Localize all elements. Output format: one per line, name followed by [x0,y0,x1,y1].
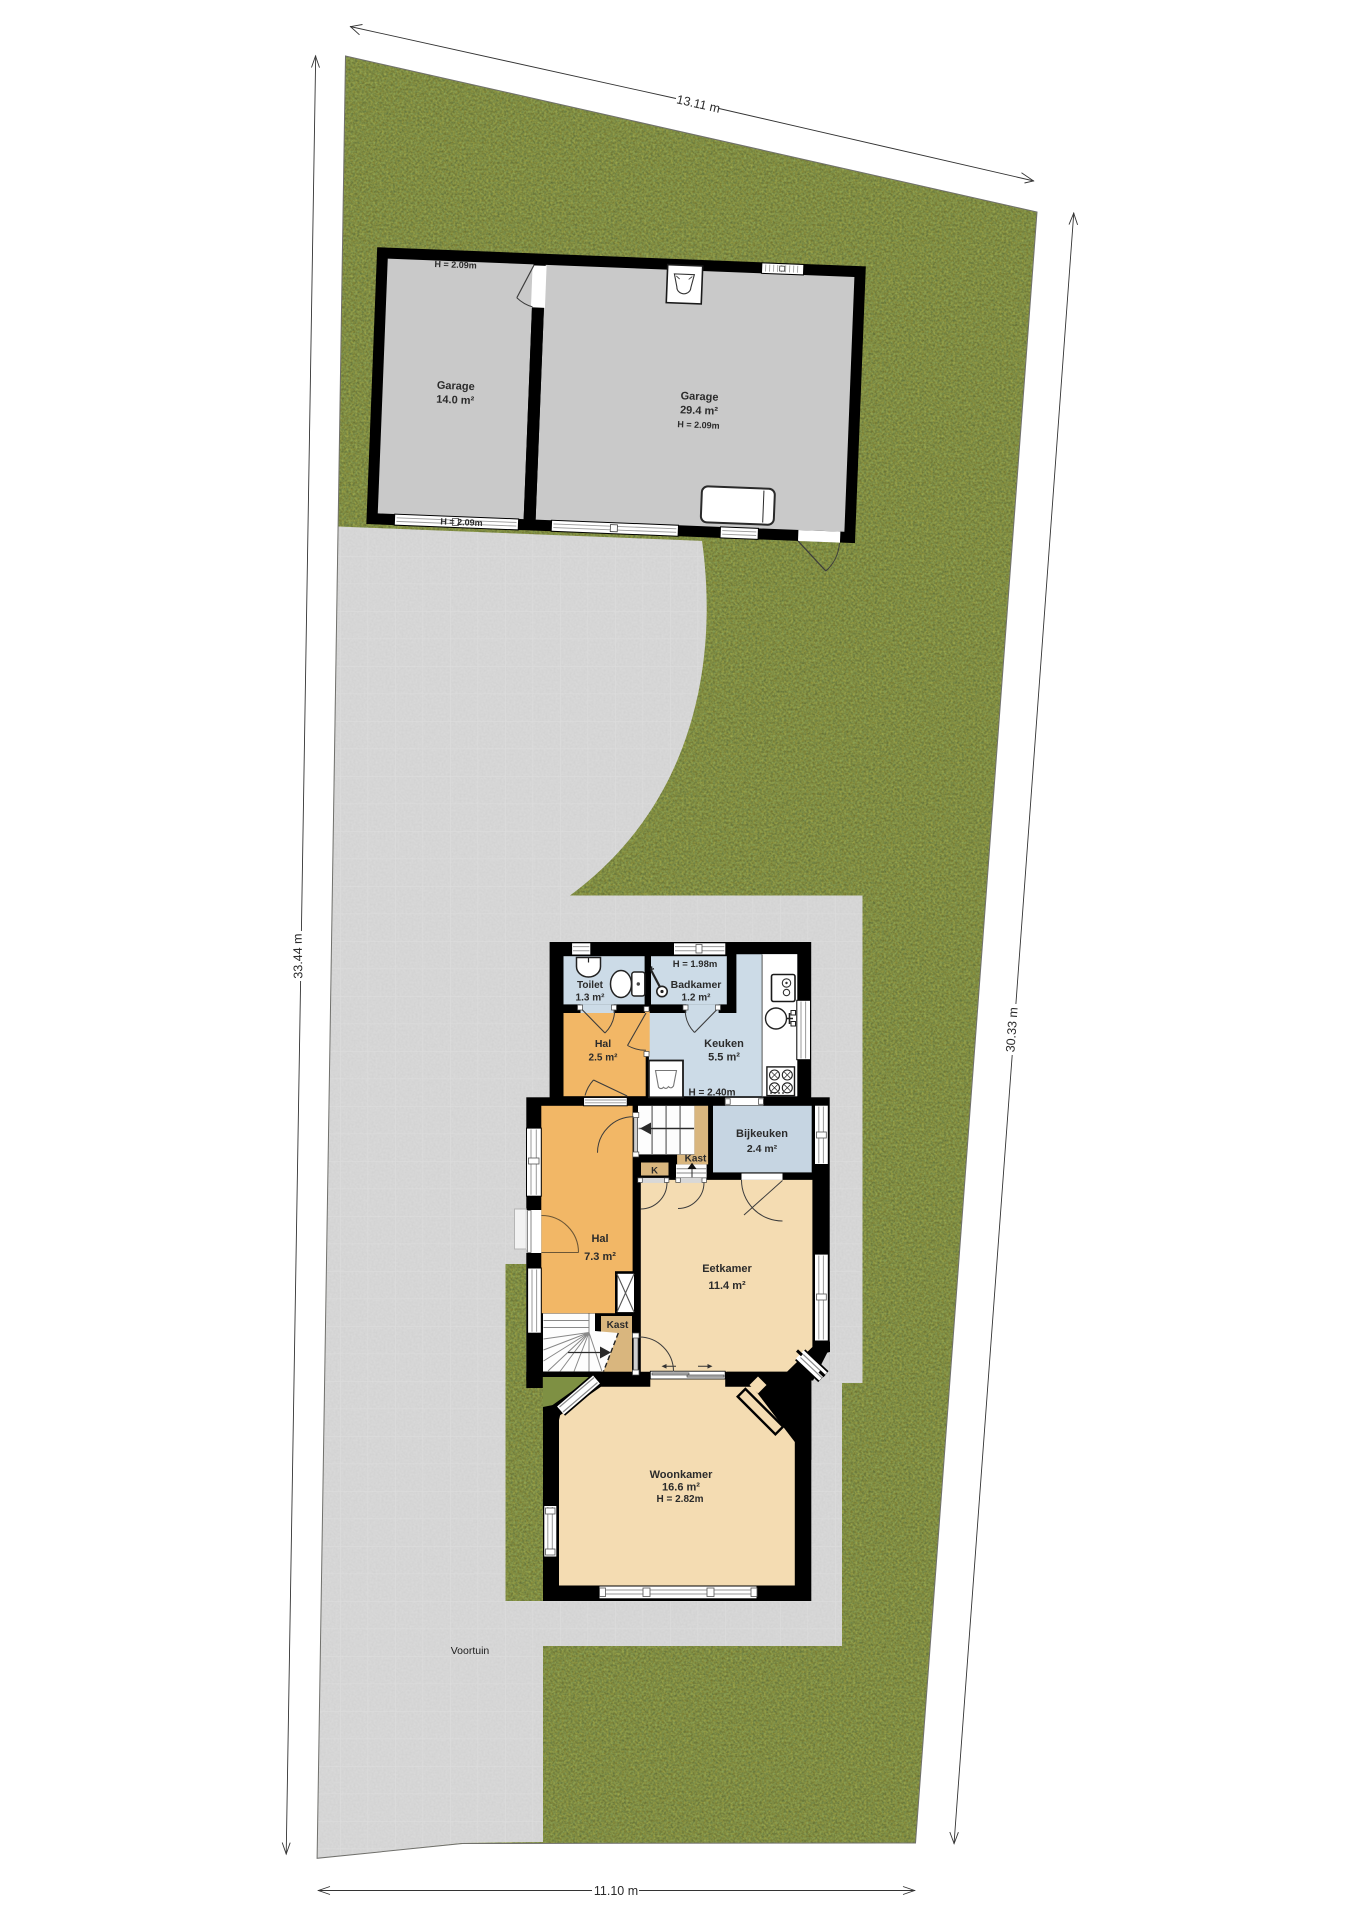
svg-text:1.3 m²: 1.3 m² [576,993,606,1004]
svg-text:Hal: Hal [595,1038,611,1050]
svg-text:Toilet: Toilet [577,980,604,991]
svg-text:29.4 m²: 29.4 m² [680,404,719,417]
svg-text:Voortuin: Voortuin [451,1645,490,1657]
svg-text:14.0 m²: 14.0 m² [436,394,475,407]
svg-text:Keuken: Keuken [704,1038,744,1050]
svg-text:H = 1.98m: H = 1.98m [673,959,718,970]
svg-text:Kast: Kast [685,1154,707,1165]
svg-text:Hal: Hal [591,1233,608,1245]
svg-text:11.4 m²: 11.4 m² [708,1280,746,1292]
svg-text:H = 2.09m: H = 2.09m [434,259,477,271]
svg-text:33.44 m: 33.44 m [291,933,306,978]
svg-text:H = 2.82m: H = 2.82m [657,1494,704,1505]
svg-text:H = 2.09m: H = 2.09m [440,516,483,528]
svg-text:Badkamer: Badkamer [671,979,722,991]
svg-text:K: K [651,1166,658,1177]
svg-text:Kast: Kast [607,1320,629,1331]
svg-text:16.6 m²: 16.6 m² [662,1482,700,1494]
svg-text:2.4 m²: 2.4 m² [747,1143,778,1155]
svg-text:5.5 m²: 5.5 m² [708,1052,740,1064]
svg-text:11.10 m: 11.10 m [594,1884,638,1898]
svg-text:Bijkeuken: Bijkeuken [736,1128,788,1140]
svg-text:Garage: Garage [680,390,718,403]
svg-text:Eetkamer: Eetkamer [702,1263,752,1275]
svg-text:H = 2.09m: H = 2.09m [677,419,720,431]
svg-text:H = 2.40m: H = 2.40m [689,1088,736,1099]
svg-text:Garage: Garage [437,380,475,393]
svg-text:1.2 m²: 1.2 m² [682,993,712,1004]
svg-text:2.5 m²: 2.5 m² [589,1053,619,1064]
svg-text:7.3 m²: 7.3 m² [584,1251,616,1263]
svg-text:Woonkamer: Woonkamer [650,1469,713,1481]
